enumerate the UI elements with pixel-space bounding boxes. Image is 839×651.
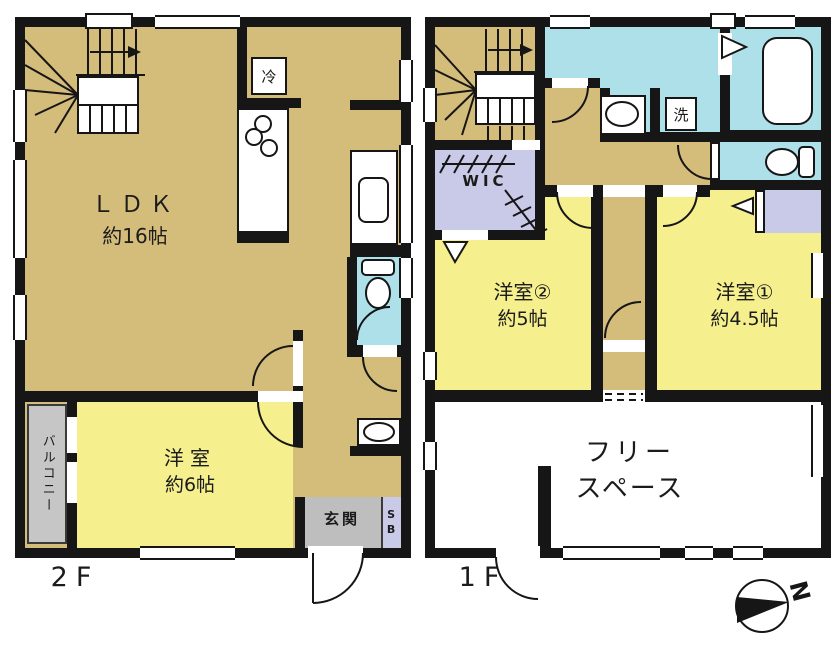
balcony-label: バルコニー	[31, 410, 63, 538]
wall	[650, 88, 660, 134]
door-opening	[603, 185, 645, 197]
laundry-box: 洗	[665, 97, 697, 131]
wall	[710, 180, 821, 190]
wall	[350, 245, 401, 257]
wall	[237, 27, 247, 100]
window	[13, 160, 27, 258]
window	[13, 295, 27, 340]
window	[733, 546, 763, 560]
wall	[237, 98, 301, 108]
wall	[535, 27, 545, 150]
toilet-room-2f	[357, 257, 401, 345]
toilet-door-leaf	[710, 142, 720, 180]
door-opening	[363, 345, 397, 357]
window	[399, 258, 413, 298]
window	[423, 442, 437, 470]
wall	[347, 257, 357, 345]
wall	[237, 233, 289, 243]
door-opening	[603, 340, 645, 352]
floor-label-2f: 2F	[30, 562, 120, 594]
window	[399, 60, 413, 102]
laundry-label: 洗	[673, 104, 688, 125]
shoebox-label: SB	[381, 500, 401, 546]
room-size-bedroom-2: 約5帖	[455, 308, 590, 331]
window	[155, 15, 240, 29]
wall	[350, 100, 401, 110]
door-opening	[663, 185, 697, 197]
window	[550, 15, 590, 29]
window	[399, 145, 413, 243]
window	[423, 352, 437, 380]
bathroom	[730, 27, 821, 130]
window	[13, 90, 27, 142]
door-opening	[293, 341, 303, 386]
room-label-bedroom-6: 洋室	[110, 446, 270, 470]
window	[685, 546, 713, 560]
room-label-ldk: ＬＤＫ	[55, 192, 215, 220]
entrance-door-opening	[308, 546, 363, 560]
kitchen-sink	[358, 177, 389, 223]
window	[140, 546, 235, 560]
wall	[645, 185, 657, 390]
door-opening	[557, 185, 593, 197]
wall	[591, 197, 603, 390]
compass-north-label: N	[783, 578, 815, 605]
window	[423, 88, 437, 122]
entrance-label: 玄関	[303, 510, 381, 528]
shutter-box	[85, 13, 133, 29]
kitchen-counter	[237, 108, 289, 233]
walk-in-closet	[435, 150, 535, 230]
window	[745, 15, 795, 29]
window	[563, 546, 660, 560]
wall	[350, 446, 401, 456]
door-opening	[258, 391, 303, 402]
shutter-box	[710, 13, 736, 29]
window	[811, 405, 825, 477]
refrigerator-label: 冷	[261, 66, 276, 87]
floor-label-1f: 1F	[438, 562, 528, 594]
closet-bedroom-1	[765, 190, 821, 233]
balcony-door	[67, 460, 77, 505]
room-label-bedroom-2: 洋室②	[455, 280, 590, 304]
floor-plan-image: 冷 洗	[0, 0, 839, 651]
wash-basin-counter	[357, 418, 401, 446]
balcony-door	[67, 415, 77, 455]
toilet-room-1f	[720, 142, 821, 180]
wall	[720, 130, 821, 142]
compass-icon: N	[736, 578, 816, 632]
room-size-bedroom-1: 約4.5帖	[672, 308, 817, 331]
door-opening	[512, 140, 540, 150]
room-size-bedroom-6: 約6帖	[110, 474, 270, 497]
closet-door-leaf	[755, 190, 765, 233]
door-opening	[552, 78, 588, 88]
washroom-sink-counter	[600, 95, 646, 135]
refrigerator: 冷	[251, 57, 287, 95]
free-space-label-line2: スペース	[540, 474, 720, 505]
entrance-door-opening	[496, 546, 540, 560]
room-label-bedroom-1: 洋室①	[672, 280, 817, 304]
north-arrow-icon	[737, 597, 789, 623]
wic-label: WIC	[440, 172, 530, 190]
door-opening	[603, 390, 645, 402]
room-size-ldk: 約16帖	[55, 224, 215, 248]
free-space-label-line1: フリー	[540, 438, 720, 469]
hall-patch	[545, 88, 600, 142]
door-opening	[718, 33, 732, 75]
door-opening	[442, 230, 488, 240]
